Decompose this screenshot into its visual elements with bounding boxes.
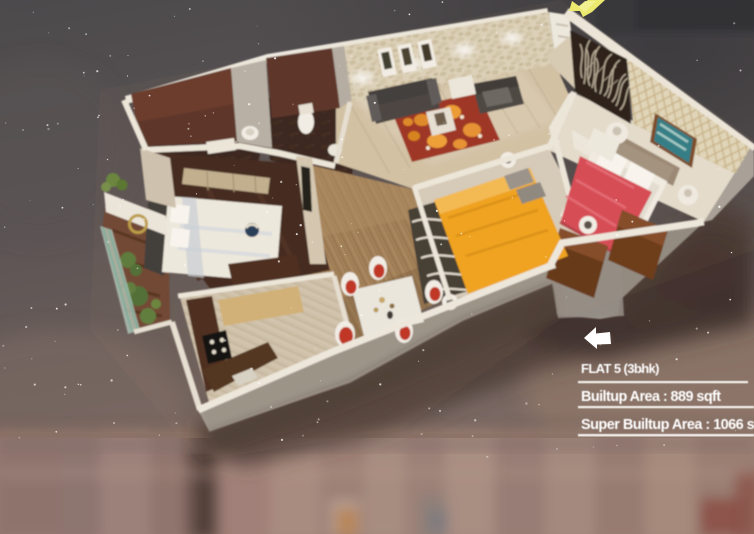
svg-text:Super Builtup Area : 1066 sqft: Super Builtup Area : 1066 sqft: [581, 417, 754, 433]
svg-text:FLAT 5 (3bhk): FLAT 5 (3bhk): [581, 361, 659, 376]
svg-text:Builtup Area : 889 sqft: Builtup Area : 889 sqft: [581, 389, 721, 405]
